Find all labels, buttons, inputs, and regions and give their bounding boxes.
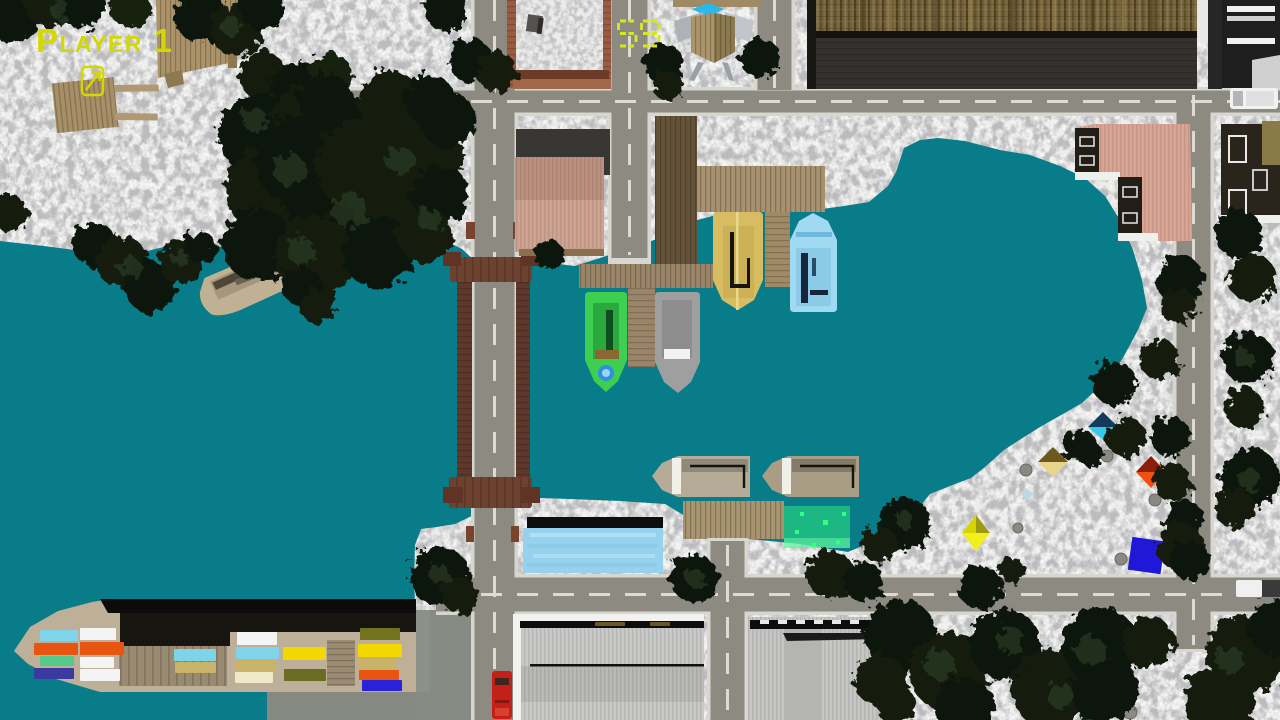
svg-text:Player 1: Player 1 (36, 22, 173, 59)
